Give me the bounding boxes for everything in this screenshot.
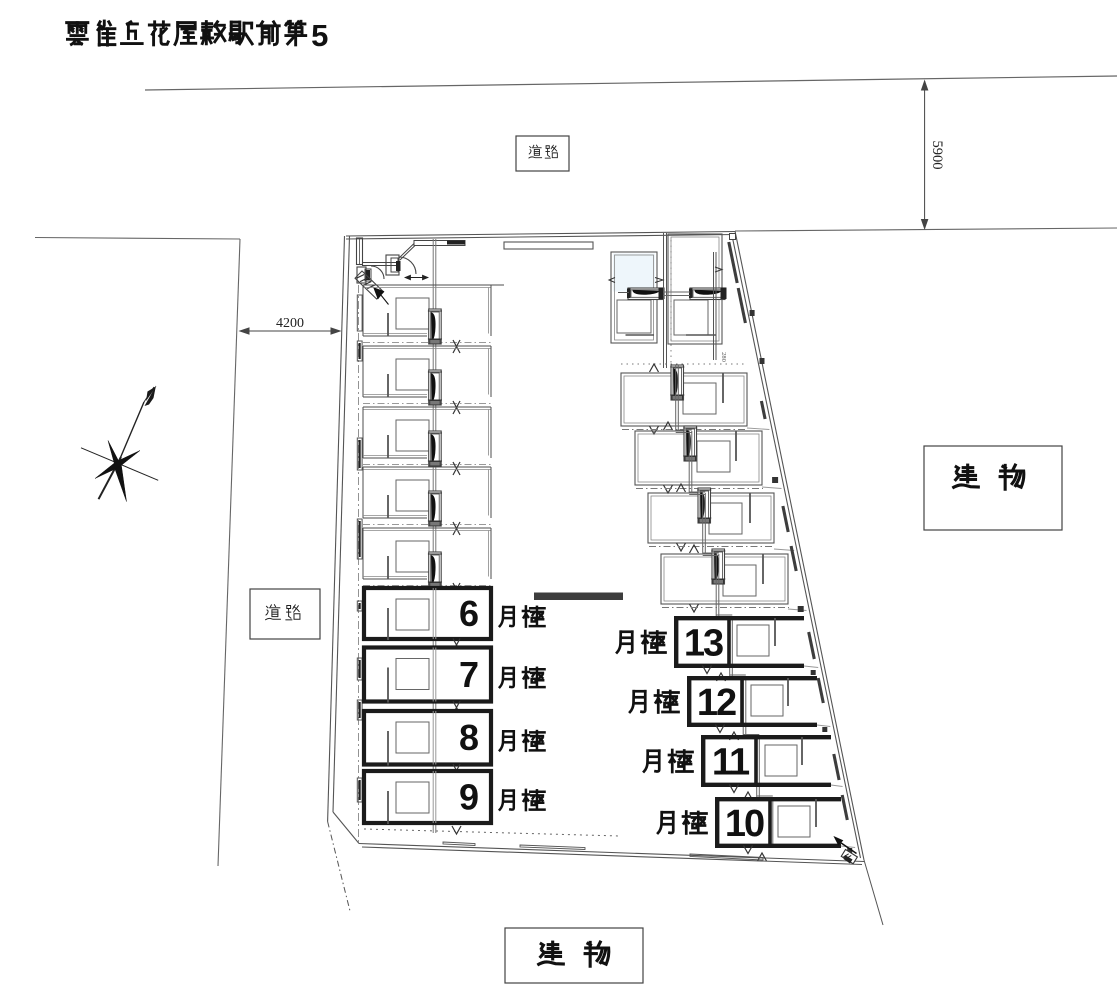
svg-text:13: 13	[684, 623, 723, 665]
svg-text:5900: 5900	[929, 141, 945, 170]
svg-text:6: 6	[459, 593, 479, 634]
svg-text:5: 5	[311, 18, 328, 53]
svg-text:10: 10	[725, 803, 764, 845]
svg-text:12: 12	[697, 682, 736, 724]
svg-text:11: 11	[712, 742, 750, 784]
svg-text:4200: 4200	[276, 316, 304, 331]
svg-text:280: 280	[720, 352, 727, 362]
svg-text:9: 9	[459, 777, 479, 818]
svg-text:8: 8	[459, 717, 479, 758]
svg-text:7: 7	[459, 654, 479, 695]
